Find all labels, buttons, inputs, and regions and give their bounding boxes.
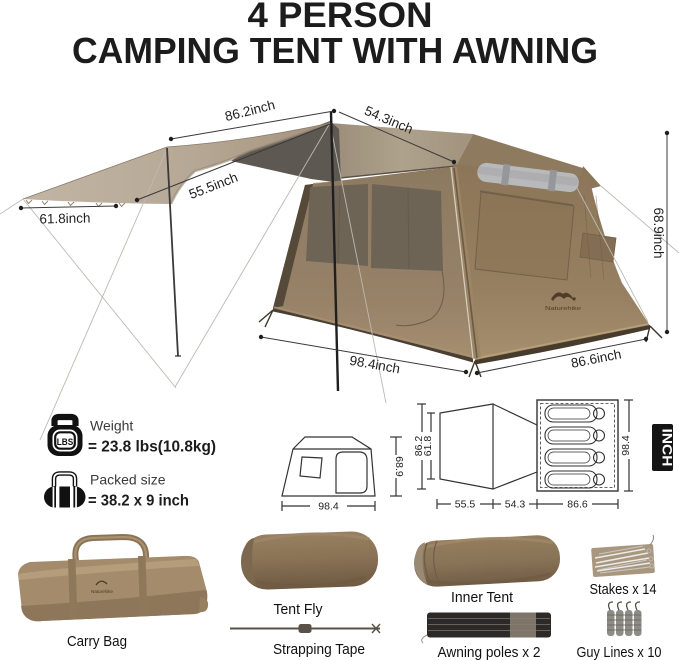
svg-text:98.4: 98.4 [318,501,339,513]
svg-text:Carry Bag: Carry Bag [67,634,127,650]
svg-text:68.9inch: 68.9inch [651,207,666,258]
svg-text:= 23.8 lbs(10.8kg): = 23.8 lbs(10.8kg) [88,439,216,456]
svg-text:Stakes x 14: Stakes x 14 [590,582,657,598]
svg-text:54.3: 54.3 [505,499,526,511]
svg-text:Guy Lines x 10: Guy Lines x 10 [577,645,662,660]
svg-text:68.9: 68.9 [393,456,405,477]
svg-text:55.5: 55.5 [455,499,476,511]
svg-text:LBS: LBS [57,437,74,447]
svg-text:INCH: INCH [660,429,675,467]
svg-text:Weight: Weight [90,418,133,434]
svg-text:Awning poles x 2: Awning poles x 2 [438,645,541,660]
svg-text:Naturehike: Naturehike [91,589,113,594]
svg-text:Inner Tent: Inner Tent [451,590,513,606]
svg-text:86.6: 86.6 [567,499,588,511]
svg-text:CAMPING TENT WITH AWNING: CAMPING TENT WITH AWNING [72,30,598,71]
svg-text:= 38.2 x 9 inch: = 38.2 x 9 inch [88,493,189,510]
svg-text:61.8inch: 61.8inch [39,211,90,227]
svg-text:Tent Fly: Tent Fly [274,602,324,618]
svg-text:Packed size: Packed size [90,472,166,488]
svg-text:98.4: 98.4 [620,435,632,456]
svg-text:Strapping Tape: Strapping Tape [273,642,365,658]
svg-text:86.2: 86.2 [413,436,425,457]
svg-text:Naturehike: Naturehike [545,306,581,312]
